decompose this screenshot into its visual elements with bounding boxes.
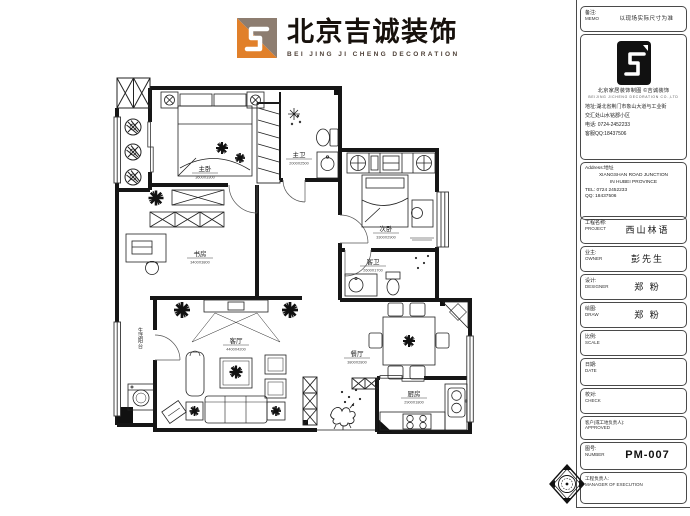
bed-second xyxy=(362,175,408,227)
field-number: 图号:NUMBER PM-007 xyxy=(580,442,687,470)
room-label-kitchen: 厨房 xyxy=(408,389,421,398)
contact-line2: IN HUBEI PROVINCE xyxy=(585,180,682,186)
toilet-icon xyxy=(330,129,338,146)
company-tel: 电话: 0724-2452233 xyxy=(585,122,682,128)
toilet-icon xyxy=(386,272,400,279)
room-label-study: 书房 xyxy=(194,249,207,258)
company-stamp-icon xyxy=(548,463,586,505)
company-qq: 客服QQ:18437506 xyxy=(585,131,682,137)
contact-qq: QQ: 18437506 xyxy=(585,194,682,200)
approved-value xyxy=(611,417,684,439)
check-value xyxy=(611,389,684,413)
field-date: 日期:DATE xyxy=(580,358,687,386)
company-address-2: 交汇处山水铭郡小区 xyxy=(585,113,682,119)
project-value: 西山林语 xyxy=(611,217,684,243)
field-scale: 比例:SCALE xyxy=(580,330,687,356)
washbasin-icon xyxy=(345,274,377,296)
memo-label-en: MEMO xyxy=(585,16,599,21)
room-dims-kitchen: 2900X1800 xyxy=(404,401,423,405)
dining-furniture xyxy=(369,302,468,379)
scale-value xyxy=(611,331,684,355)
room-dims-guestbath: 2600X1700 xyxy=(363,269,382,273)
company-box: 北京家居装饰制图 ©吉诚装饰 BEIJING JICHENG DECORATIO… xyxy=(580,34,687,160)
chaise xyxy=(186,352,204,396)
master-bath-fixtures xyxy=(288,108,338,178)
owner-value: 彭先生 xyxy=(611,247,684,271)
balcony-planter-grid xyxy=(117,78,150,108)
company-line: 北京家居装饰制图 ©吉诚装饰 xyxy=(581,88,686,94)
floor-plan: 主卧 3600X3300 主卫 2000X2500 次卧 3300X2900 客… xyxy=(0,0,576,516)
sheet-number-value: PM-007 xyxy=(611,443,684,469)
room-label-dining: 餐厅 xyxy=(351,349,365,358)
field-draw: 绘图:DRAW 郑 粉 xyxy=(580,302,687,328)
wardrobe-master xyxy=(257,103,280,183)
field-manager: 工程负责人:MANAGER OF EXECUTION xyxy=(580,472,687,504)
company-address-1: 地址:湖北省荆门市象山大道与工业街 xyxy=(585,104,682,110)
bay-window xyxy=(437,192,449,247)
field-owner: 业主:OWNER 彭先生 xyxy=(580,246,687,272)
living-furniture xyxy=(162,300,298,423)
guest-bath-fixtures xyxy=(345,255,429,296)
contact-label: Address:地址 xyxy=(585,166,682,172)
room-dims-study: 3400X3800 xyxy=(190,261,209,265)
field-project: 工程名称:PROJECT 西山林语 xyxy=(580,216,687,244)
date-value xyxy=(611,359,684,385)
manager-value xyxy=(611,473,684,503)
shower-icon xyxy=(288,108,300,120)
kitchen-fixtures xyxy=(380,384,467,430)
room-label-guestbath: 客卫 xyxy=(367,257,381,266)
room-label-laundry: 生活阳台 xyxy=(137,326,143,350)
room-label-living: 客厅 xyxy=(230,336,244,345)
drawing-sheet: 北京吉诚装饰 BEI JING JI CHENG DECORATION xyxy=(0,0,690,516)
title-block: 备注: MEMO 以现场实际尺寸为准 北京家居装饰制图 ©吉诚装饰 BEIJIN… xyxy=(576,0,690,508)
room-label-masterbath: 主卫 xyxy=(293,150,307,159)
designer-value: 郑 粉 xyxy=(611,275,684,299)
contact-box: Address:地址 XIANGSHAN ROAD JUNCTION IN HU… xyxy=(580,162,687,220)
pet-figure xyxy=(331,403,356,430)
room-label-second: 次卧 xyxy=(380,224,394,233)
memo-value: 以现场实际尺寸为准 xyxy=(609,7,684,31)
company-seal-icon xyxy=(616,40,652,86)
corner-cabinet xyxy=(443,302,468,328)
sofa xyxy=(205,396,267,423)
contact-line1: XIANGSHAN ROAD JUNCTION xyxy=(585,173,682,179)
field-check: 校对:CHECK xyxy=(580,388,687,414)
room-dims-masterbath: 2000X2500 xyxy=(289,162,308,166)
room-label-master: 主卧 xyxy=(199,164,213,173)
field-designer: 设计:DESIGNER 郑 粉 xyxy=(580,274,687,300)
field-approved: 客户(或工地负责人):APPROVED xyxy=(580,416,687,440)
laundry-balcony xyxy=(128,384,154,410)
entry-cabinets xyxy=(303,377,378,425)
room-dims-dining: 3800X2800 xyxy=(347,361,366,365)
room-dims-second: 3300X2900 xyxy=(376,236,395,240)
company-line-en: BEIJING JICHENG DECORATION CO.,LTD xyxy=(581,95,686,99)
room-dims-master: 3600X3300 xyxy=(195,176,214,180)
bed-master xyxy=(161,92,264,176)
draw-value: 郑 粉 xyxy=(611,303,684,327)
room-dims-living: 4400X4200 xyxy=(226,348,245,352)
memo-box: 备注: MEMO 以现场实际尺寸为准 xyxy=(580,6,687,32)
balcony-plants xyxy=(125,119,141,185)
